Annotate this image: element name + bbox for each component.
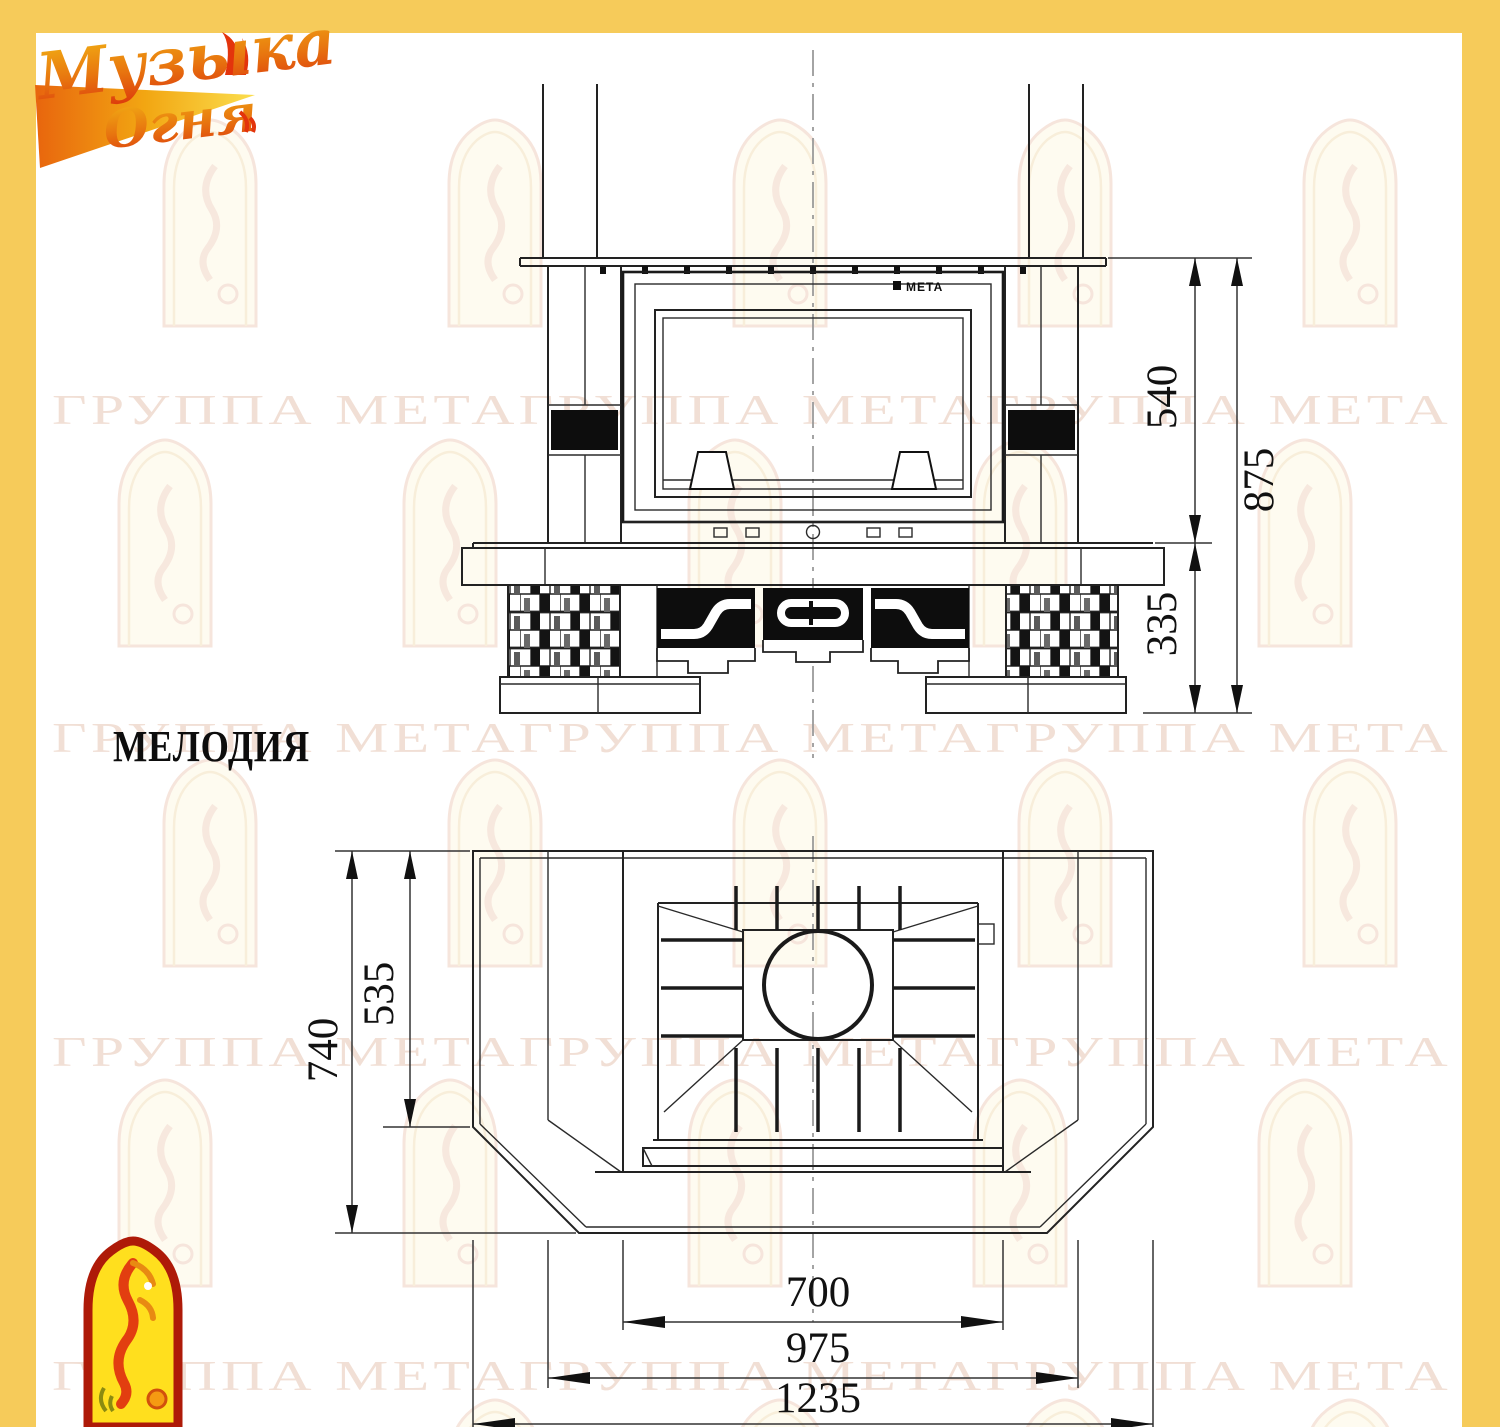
dimension-label-700: 700 [786,1269,851,1316]
dimension-label-875: 875 [1236,448,1283,513]
pedestal-left [508,585,620,677]
brand-logo-square [893,281,901,290]
corner-emblem [88,1241,178,1427]
plinth-left [500,677,700,713]
watermark-text-row: ГРУППА МЕТАГРУППА МЕТАГРУППА МЕТА [52,1354,1452,1400]
pedestal-right [1006,585,1118,677]
andiron-left [690,452,734,489]
panel-foot-right [871,648,969,673]
panel-foot-left [657,648,755,673]
page-border-left [0,33,36,1427]
emblem-dot [144,1282,152,1290]
technical-drawing-canvas: ГРУППА МЕТАГРУППА МЕТАГРУППА МЕТА ГРУППА… [0,0,1500,1427]
model-title: МЕЛОДИЯ [113,722,310,771]
watermark-arch-grid [119,120,1396,1427]
dimension-label-335: 335 [1139,592,1186,657]
air-vent [899,528,912,537]
dimension-label-975: 975 [786,1325,851,1372]
vent-left [551,410,618,450]
air-vent [867,528,880,537]
front-dimensions: 540 875 335 [1108,258,1283,713]
side-column-left [548,266,621,543]
dimension-label-540: 540 [1139,365,1186,430]
firebox-brand-mark: МЕТА [906,280,943,294]
drawing-page: ГРУППА МЕТАГРУППА МЕТАГРУППА МЕТА ГРУППА… [0,0,1500,1427]
andiron-right [892,452,936,489]
plinth-right [926,677,1126,713]
base-section [500,585,1126,713]
dimension-label-1235: 1235 [775,1375,861,1422]
nameplate-tab [978,924,994,944]
dimension-label-535: 535 [356,962,403,1027]
dimension-label-740: 740 [300,1018,347,1083]
vent-right [1008,410,1075,450]
watermark-text-row: ГРУППА МЕТАГРУППА МЕТАГРУППА МЕТА [52,1030,1452,1076]
panel-foot-center [763,640,863,662]
watermark-layer: ГРУППА МЕТАГРУППА МЕТАГРУППА МЕТА ГРУППА… [52,120,1452,1427]
watermark-text-row: ГРУППА МЕТАГРУППА МЕТАГРУППА МЕТА [52,388,1452,434]
page-border-right [1462,33,1500,1427]
emblem-sun-icon [148,1390,166,1408]
